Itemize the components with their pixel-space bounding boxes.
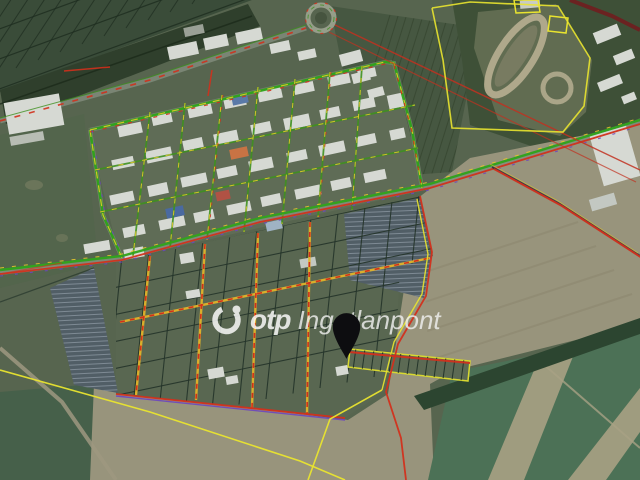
location-pin-icon[interactable] <box>330 308 363 364</box>
field-patch <box>25 180 43 190</box>
field-bottomleft <box>0 384 94 480</box>
red-stub <box>208 70 212 96</box>
field-patch <box>56 234 68 242</box>
satellite-map: otp Ingatlanpont <box>0 0 640 480</box>
building <box>269 40 291 54</box>
striped-parcel-left <box>50 268 118 393</box>
roundabout-island <box>315 12 327 24</box>
building <box>297 48 316 61</box>
map-canvas <box>0 0 640 480</box>
